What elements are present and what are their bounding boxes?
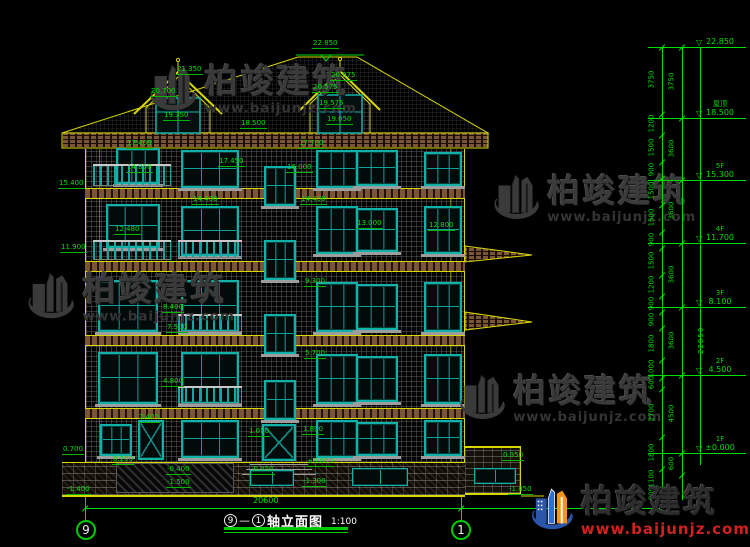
level-label: 2F4.500	[694, 357, 746, 374]
window	[181, 150, 239, 188]
basement-window	[474, 468, 516, 484]
level-line	[648, 453, 746, 454]
window	[98, 352, 158, 404]
dim-text: 3600	[669, 197, 676, 225]
watermark-logo-icon	[24, 264, 76, 322]
window	[316, 150, 358, 188]
elevation-annotation: 21.350	[176, 66, 203, 75]
elevation-annotation: 19.575	[318, 100, 345, 109]
elevation-annotation: 13.000	[356, 220, 383, 229]
elevation-annotation: 5.700	[304, 350, 326, 359]
brand-name: 柏竣建筑	[581, 476, 750, 522]
window	[264, 380, 296, 420]
dim-text: 3750	[649, 66, 656, 94]
elevation-annotation: 0.200	[112, 456, 134, 465]
elevation-annotation: 14.850	[126, 164, 153, 173]
elevation-annotation: 17.400	[126, 140, 153, 149]
elevation-annotation: 1.050	[248, 428, 270, 437]
elevation-annotation: 7.500	[166, 324, 188, 333]
brand-logo-block: 柏竣建筑 www.baijunjz.com	[528, 466, 750, 547]
window	[181, 420, 239, 458]
basement-window	[352, 468, 408, 486]
cad-drawing-canvas: 22.85021.35020.70019.35020.97520.57519.5…	[0, 0, 750, 547]
dim-text: 1800	[649, 330, 656, 358]
elevation-annotation: 9.300	[304, 278, 326, 287]
elevation-annotation: 17.700	[298, 140, 325, 149]
dim-text: 3600	[669, 261, 676, 289]
window	[424, 152, 462, 186]
dim-line	[662, 47, 663, 508]
elevation-annotation: 12.480	[114, 226, 141, 235]
bottom-total-dimension: 20600	[252, 497, 279, 505]
window	[316, 282, 358, 332]
window	[356, 208, 398, 252]
window	[424, 420, 462, 456]
title-underline-thin	[224, 532, 348, 533]
watermark: 柏竣建筑 www.baijunjz.com	[456, 364, 662, 425]
level-line	[648, 243, 746, 244]
elevation-annotation: 1.800	[302, 426, 324, 435]
axis-bubble-9: 9	[76, 520, 96, 540]
elevation-annotation: 19.350	[163, 112, 190, 121]
title-axis-to-bubble: 1	[252, 514, 265, 527]
window	[424, 282, 462, 332]
level-label: 屋顶18.500	[694, 100, 746, 117]
window	[264, 240, 296, 280]
level-label: 4F11.700	[694, 225, 746, 242]
total-height-dimension: 22850	[697, 310, 705, 354]
watermark: 柏竣建筑 www.baijunjz.com	[24, 262, 235, 324]
level-line	[648, 118, 746, 119]
watermark: 柏竣建筑 www.baijunjz.com	[490, 164, 696, 225]
door	[138, 420, 164, 460]
watermark-logo-icon	[490, 166, 541, 222]
watermark-logo-icon	[456, 366, 507, 422]
window	[316, 354, 358, 404]
elevation-annotation: 20.575	[312, 84, 339, 93]
awning-lower	[465, 312, 532, 330]
elevation-annotation: -1.400	[66, 486, 91, 495]
brand-logo-icon	[528, 472, 575, 542]
elevation-annotation: 17.450	[218, 158, 245, 167]
elevation-annotation: 15.400	[58, 180, 85, 189]
level-line	[648, 307, 746, 308]
logo-tower-mid	[548, 489, 554, 523]
dim-text: 2700	[649, 399, 656, 427]
dim-text: 600	[649, 369, 656, 397]
elevation-annotation: 0.700	[62, 446, 84, 455]
level-label: 5F15.300	[694, 162, 746, 179]
watermark-brand-name: 柏竣建筑	[83, 262, 235, 311]
dim-text: 3600	[669, 327, 676, 355]
dim-text: 4500	[669, 400, 676, 428]
elevation-annotation: -0.400	[166, 466, 191, 475]
dim-line	[682, 47, 683, 500]
window	[356, 422, 398, 456]
window	[316, 206, 358, 254]
elevation-annotation: 14.400	[192, 196, 219, 205]
elevation-annotation: 20.975	[330, 72, 357, 81]
watermark-brand-name: 柏竣建筑	[513, 364, 662, 412]
dim-text: 3750	[669, 68, 676, 96]
axis-bubble-1: 1	[451, 520, 471, 540]
window	[264, 314, 296, 354]
elevation-annotation: 4.800	[162, 378, 184, 387]
elevation-annotation: 8.400	[162, 304, 184, 313]
dim-text: 3600	[669, 135, 676, 163]
window	[356, 150, 398, 186]
elevation-annotation: 22.850	[312, 40, 339, 49]
elevation-annotation: -0.450	[250, 466, 275, 475]
level-line	[648, 180, 746, 181]
level-label: 3F8.100	[694, 289, 746, 306]
elevation-annotation: 12.800	[428, 222, 455, 231]
elevation-annotation: 16.000	[286, 164, 313, 173]
window	[356, 356, 398, 402]
watermark-brand-url: www.baijunjz.com	[83, 308, 235, 324]
title-scale: 1:100	[331, 517, 357, 527]
title-dash: —	[239, 514, 250, 527]
balcony-railing	[93, 240, 171, 260]
elevation-annotation: 18.500	[240, 120, 267, 129]
title-axis-from-bubble: 9	[224, 514, 237, 527]
drawing-title: 9 — 1 轴立面图 1:100	[224, 511, 357, 530]
elevation-annotation: 2.400	[138, 414, 160, 423]
awning-upper	[465, 246, 532, 262]
window	[100, 424, 132, 456]
title-text: 轴立面图	[267, 511, 323, 530]
elevation-annotation: 19.050	[326, 116, 353, 125]
elevation-annotation: ±0.000	[306, 458, 334, 467]
elevation-annotation: 14.400	[300, 196, 327, 205]
elevation-annotation: 20.700	[150, 88, 177, 97]
elevation-annotation: 0.950	[502, 452, 524, 461]
elevation-annotation: -1.300	[302, 478, 327, 487]
level-label: 1F±0.000	[694, 435, 746, 452]
watermark-brand-url: www.baijunjz.com	[513, 409, 662, 425]
level-label: 22.850	[694, 37, 746, 46]
balcony-railing	[178, 386, 242, 404]
brand-url: www.baijunjz.com	[581, 520, 750, 538]
dim-text: 1800	[649, 439, 656, 467]
elevation-annotation: -1.500	[166, 479, 191, 488]
dim-text: 1500	[649, 177, 656, 205]
elevation-annotation: 11.900	[60, 244, 87, 253]
balcony-railing	[178, 240, 242, 258]
window	[356, 284, 398, 330]
